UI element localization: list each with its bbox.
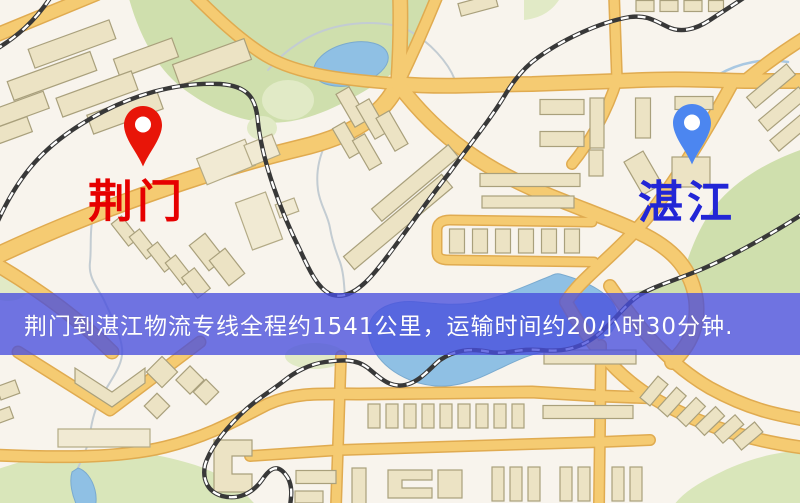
origin-label: 荆门 [88, 175, 186, 228]
destination-pin-hole [684, 115, 700, 131]
destination-label: 湛江 [638, 176, 736, 229]
map-canvas: 荆门 湛江 [0, 0, 800, 503]
origin-pin-hole [135, 117, 151, 133]
map-viewport[interactable]: 荆门 湛江 荆门到湛江物流专线全程约1541公里，运输时间约20小时30分钟. [0, 0, 800, 503]
route-info-banner: 荆门到湛江物流专线全程约1541公里，运输时间约20小时30分钟. [0, 293, 800, 355]
route-info-text: 荆门到湛江物流专线全程约1541公里，运输时间约20小时30分钟. [24, 307, 733, 341]
